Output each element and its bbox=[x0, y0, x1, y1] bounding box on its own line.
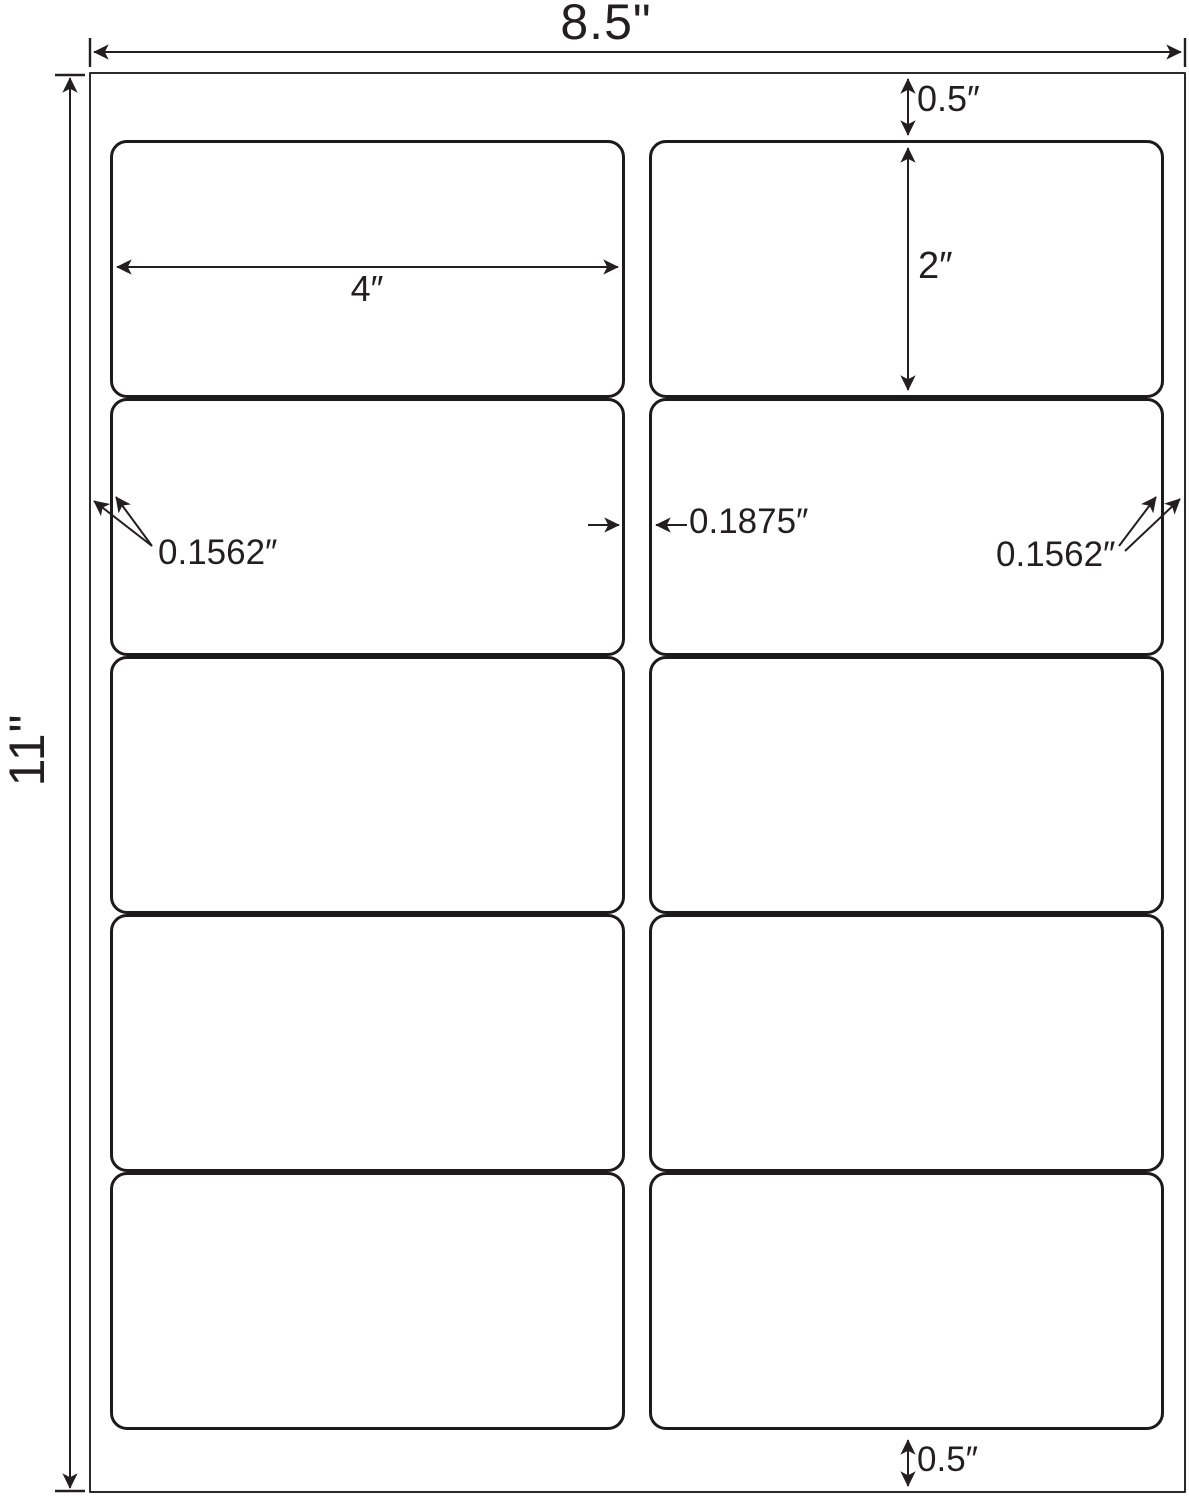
label-cell bbox=[649, 656, 1164, 914]
label-cell bbox=[649, 1172, 1164, 1430]
sheet-height-arrow bbox=[55, 75, 85, 1491]
label-height-label: 2″ bbox=[918, 247, 953, 285]
label-sheet-diagram: 8.5" 11" 0.5″ 2″ 4″ 0.1562″ 0.1875″ 0.15… bbox=[0, 0, 1189, 1500]
label-cell bbox=[110, 656, 625, 914]
label-cell bbox=[110, 1172, 625, 1430]
bottom-margin-label: 0.5″ bbox=[917, 1442, 978, 1477]
label-cell bbox=[649, 914, 1164, 1172]
right-margin-label: 0.1562″ bbox=[996, 537, 1115, 572]
top-margin-label: 0.5″ bbox=[917, 81, 980, 117]
label-cell bbox=[649, 140, 1164, 398]
sheet-width-label: 8.5" bbox=[560, 0, 651, 47]
left-margin-label: 0.1562″ bbox=[158, 535, 277, 570]
sheet-height-label: 11" bbox=[2, 714, 52, 787]
label-cell bbox=[110, 914, 625, 1172]
label-cell bbox=[110, 398, 625, 656]
center-gap-label: 0.1875″ bbox=[689, 504, 808, 539]
label-width-label: 4″ bbox=[351, 271, 384, 307]
